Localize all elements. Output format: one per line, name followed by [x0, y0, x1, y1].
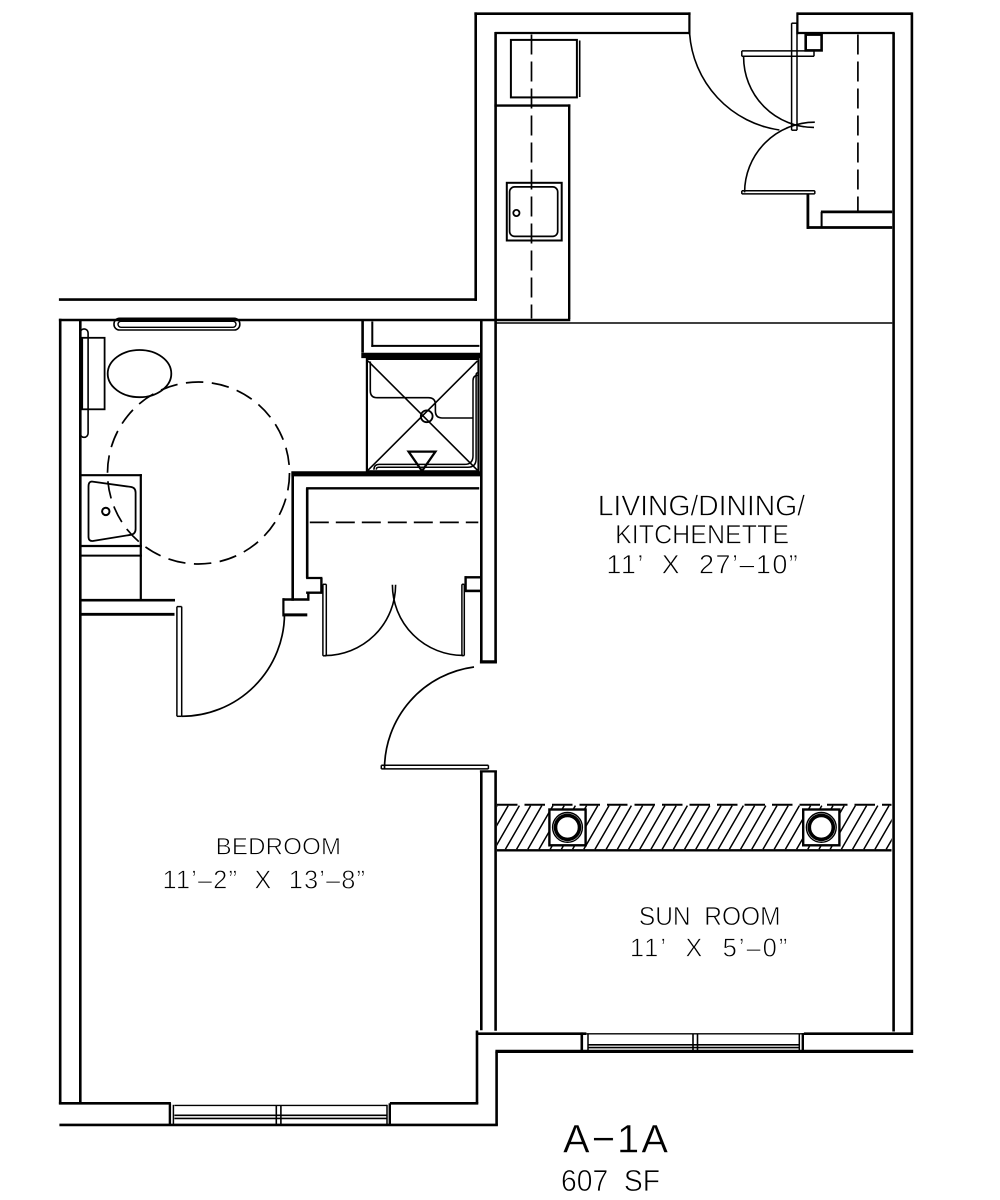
svg-text:LIVING/DINING/: LIVING/DINING/ — [598, 490, 805, 522]
svg-text:SUN ROOM: SUN ROOM — [639, 901, 781, 931]
svg-text:KITCHENETTE: KITCHENETTE — [615, 520, 789, 550]
svg-text:BEDROOM: BEDROOM — [216, 834, 341, 861]
svg-text:11’ X 5’–0”: 11’ X 5’–0” — [630, 935, 788, 963]
svg-text:11’ X 27’–10”: 11’ X 27’–10” — [606, 550, 797, 580]
svg-text:607 SF: 607 SF — [561, 1163, 660, 1198]
svg-text:11’–2” X 13’–8”: 11’–2” X 13’–8” — [163, 867, 366, 895]
